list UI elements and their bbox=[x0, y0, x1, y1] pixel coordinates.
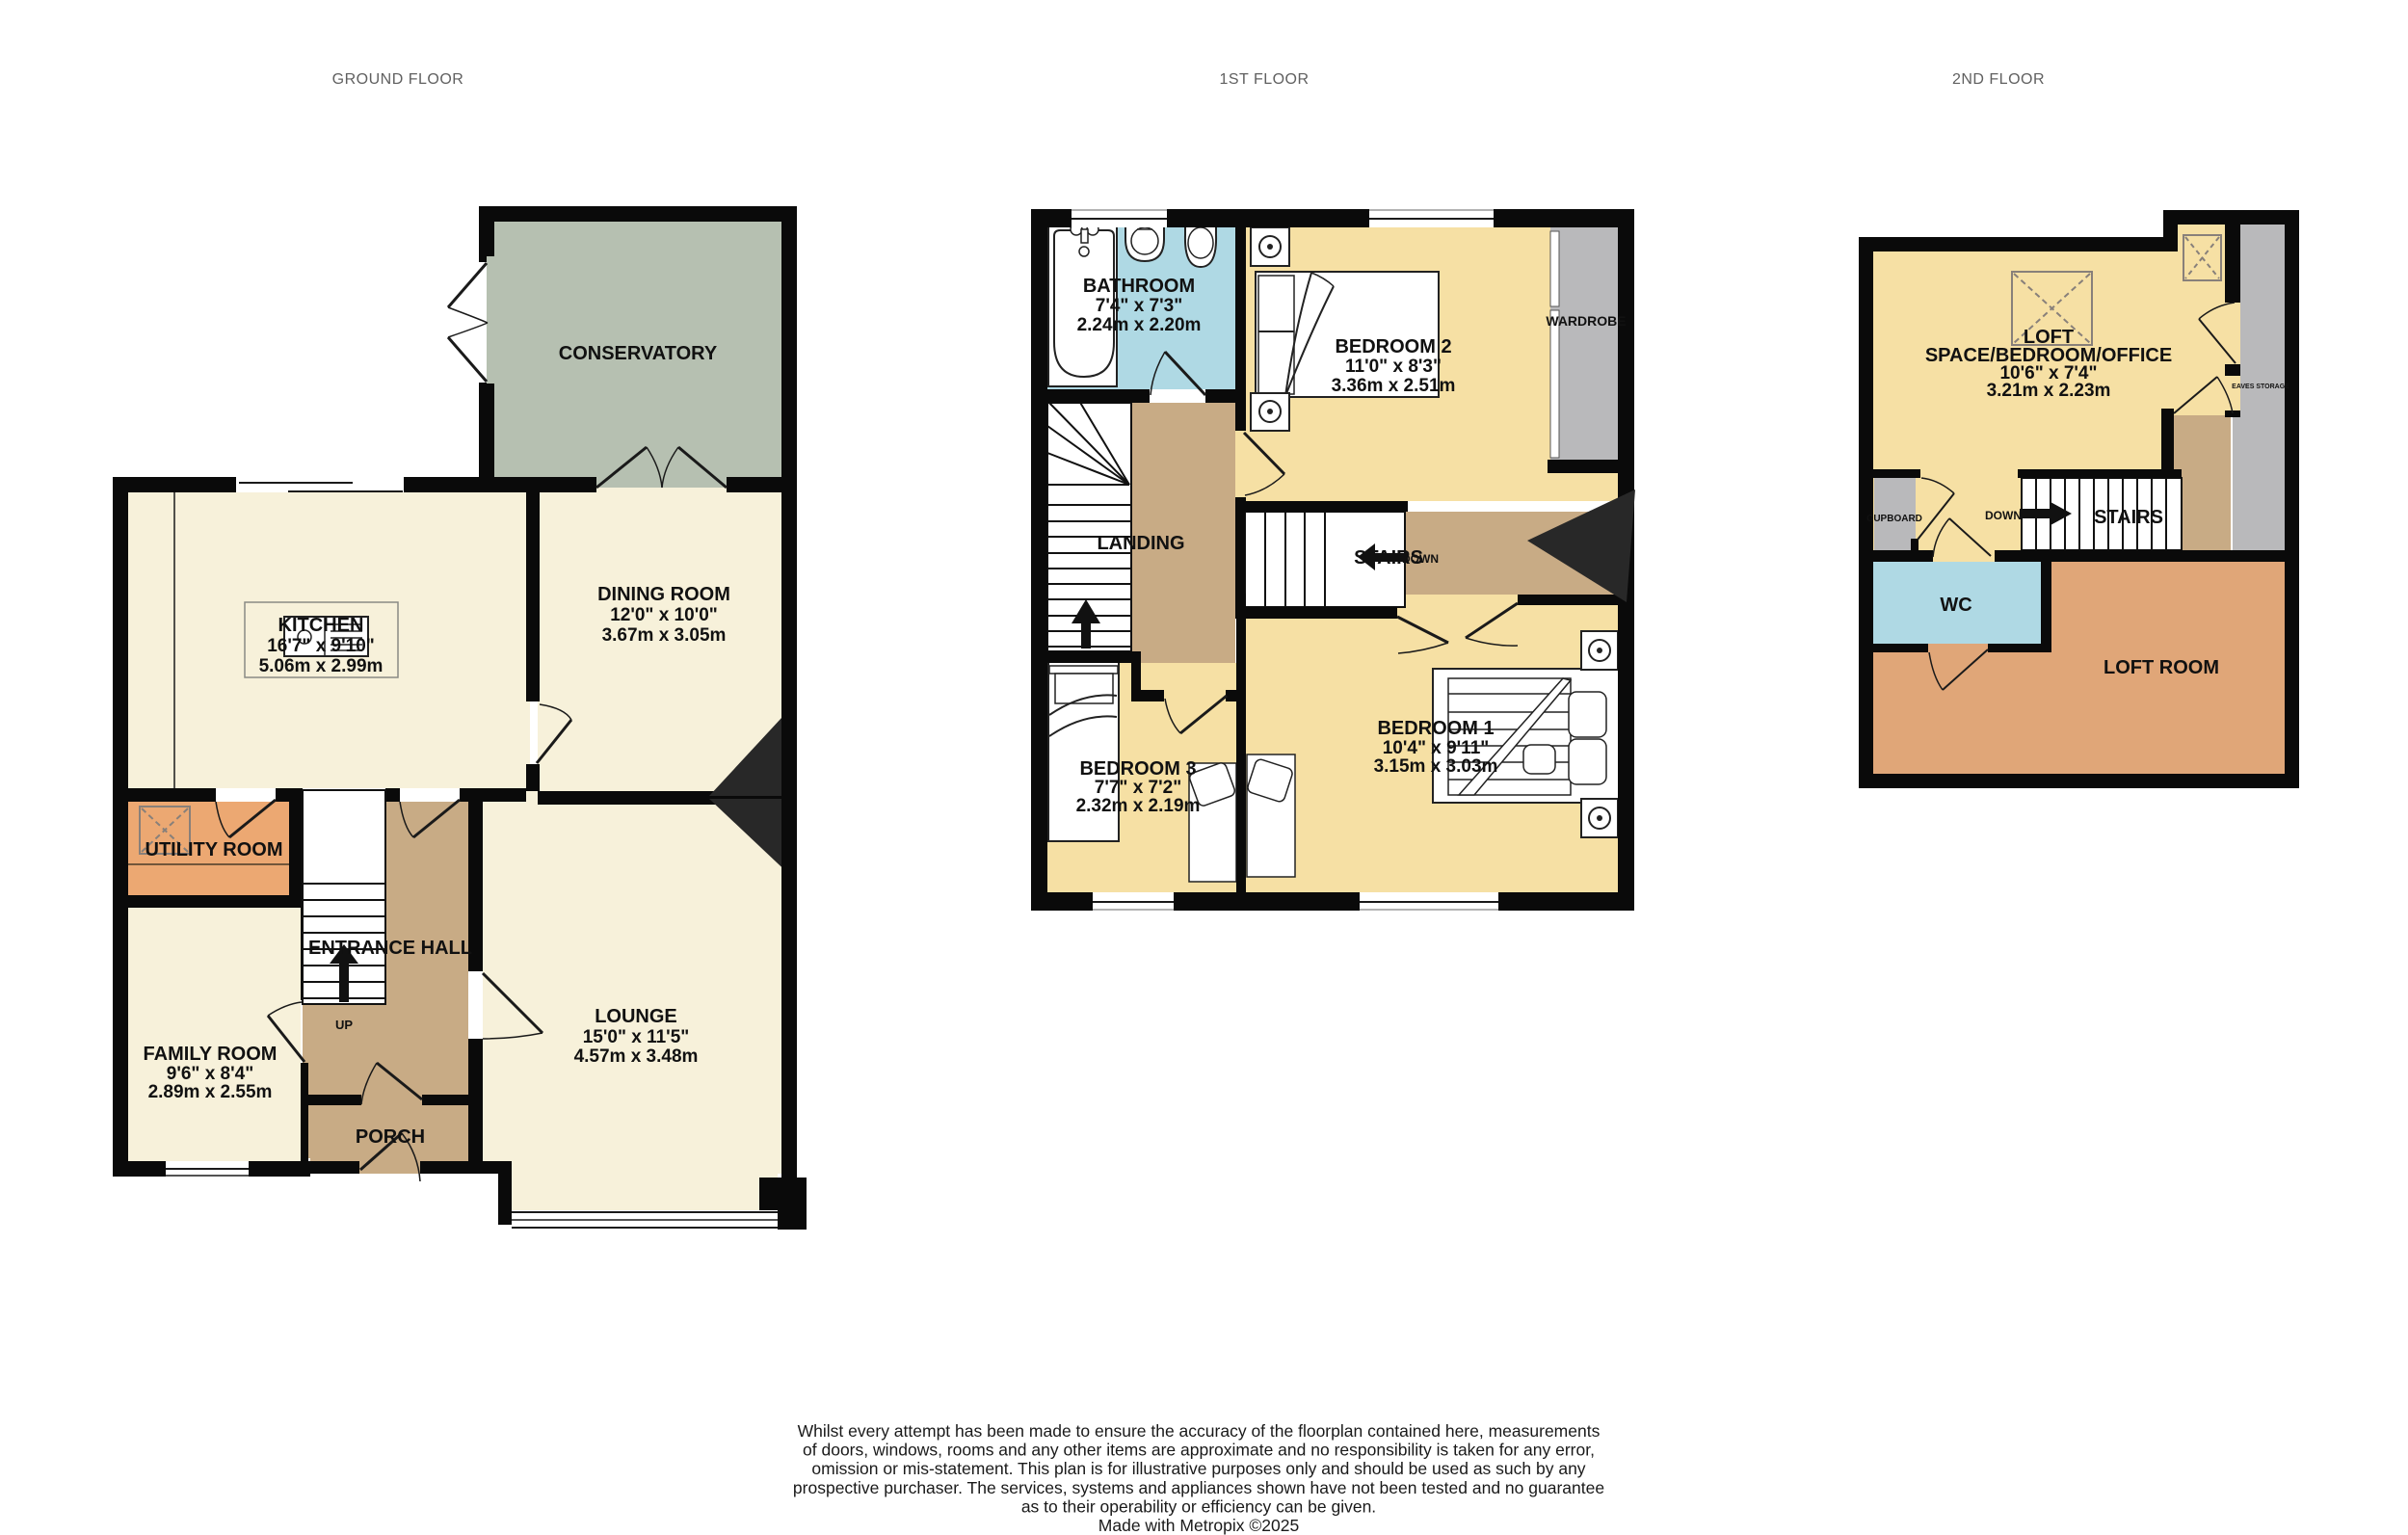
svg-text:prospective purchaser. The ser: prospective purchaser. The services, sys… bbox=[793, 1478, 1604, 1497]
svg-text:3.15m x 3.03m: 3.15m x 3.03m bbox=[1374, 756, 1498, 777]
svg-text:2.32m x 2.19m: 2.32m x 2.19m bbox=[1076, 796, 1201, 816]
svg-text:Whilst every attempt has been: Whilst every attempt has been made to en… bbox=[798, 1421, 1601, 1441]
svg-text:9'6" x 8'4": 9'6" x 8'4" bbox=[167, 1064, 253, 1084]
svg-text:BATHROOM: BATHROOM bbox=[1083, 276, 1195, 297]
svg-text:BEDROOM 3: BEDROOM 3 bbox=[1079, 758, 1196, 780]
svg-text:5.06m x 2.99m: 5.06m x 2.99m bbox=[259, 656, 384, 676]
svg-text:12'0" x 10'0": 12'0" x 10'0" bbox=[610, 605, 718, 625]
svg-text:KITCHEN: KITCHEN bbox=[278, 615, 364, 636]
svg-text:BEDROOM 1: BEDROOM 1 bbox=[1377, 718, 1494, 739]
svg-text:7'7" x 7'2": 7'7" x 7'2" bbox=[1095, 778, 1181, 798]
svg-text:LANDING: LANDING bbox=[1097, 533, 1184, 554]
svg-text:4.57m x 3.48m: 4.57m x 3.48m bbox=[574, 1046, 699, 1067]
svg-text:BEDROOM 2: BEDROOM 2 bbox=[1335, 336, 1451, 357]
svg-text:DOWN: DOWN bbox=[1985, 509, 2022, 522]
svg-text:15'0" x 11'5": 15'0" x 11'5" bbox=[583, 1027, 690, 1047]
svg-text:CUPBOARD: CUPBOARD bbox=[1866, 514, 1922, 524]
svg-text:10'4" x 9'11": 10'4" x 9'11" bbox=[1383, 738, 1490, 758]
svg-text:3.21m x 2.23m: 3.21m x 2.23m bbox=[1987, 381, 2111, 401]
svg-text:UP: UP bbox=[335, 1018, 353, 1032]
svg-text:CONSERVATORY: CONSERVATORY bbox=[559, 343, 718, 364]
svg-text:of doors, windows, rooms and a: of doors, windows, rooms and any other i… bbox=[803, 1441, 1595, 1460]
svg-text:omission or mis-statement. Thi: omission or mis-statement. This plan is … bbox=[811, 1459, 1585, 1478]
svg-text:7'4" x 7'3": 7'4" x 7'3" bbox=[1096, 296, 1182, 316]
svg-text:EAVES STORAGE: EAVES STORAGE bbox=[2232, 384, 2289, 390]
svg-text:UTILITY ROOM: UTILITY ROOM bbox=[146, 839, 283, 860]
svg-text:GROUND FLOOR: GROUND FLOOR bbox=[332, 71, 464, 88]
svg-text:11'0" x 8'3": 11'0" x 8'3" bbox=[1345, 357, 1442, 377]
svg-text:WARDROBE: WARDROBE bbox=[1546, 313, 1626, 329]
svg-text:as to their operability or eff: as to their operability or efficiency ca… bbox=[1021, 1496, 1376, 1516]
svg-text:1ST FLOOR: 1ST FLOOR bbox=[1219, 71, 1309, 88]
svg-text:LOFT ROOM: LOFT ROOM bbox=[2104, 657, 2219, 678]
svg-text:ENTRANCE HALL: ENTRANCE HALL bbox=[308, 938, 472, 959]
svg-text:FAMILY ROOM: FAMILY ROOM bbox=[144, 1044, 278, 1065]
svg-text:2.89m x 2.55m: 2.89m x 2.55m bbox=[148, 1082, 273, 1102]
svg-text:PORCH: PORCH bbox=[356, 1126, 425, 1148]
svg-text:STAIRS: STAIRS bbox=[2094, 507, 2163, 528]
svg-text:3.36m x 2.51m: 3.36m x 2.51m bbox=[1332, 376, 1456, 396]
svg-text:16'7" x 9'10": 16'7" x 9'10" bbox=[267, 636, 375, 656]
svg-text:DINING ROOM: DINING ROOM bbox=[597, 584, 730, 605]
svg-text:2.24m x 2.20m: 2.24m x 2.20m bbox=[1077, 315, 1202, 335]
svg-text:WC: WC bbox=[1940, 595, 1971, 616]
svg-text:2ND FLOOR: 2ND FLOOR bbox=[1952, 71, 2045, 88]
svg-text:LOUNGE: LOUNGE bbox=[595, 1006, 677, 1027]
svg-text:3.67m x 3.05m: 3.67m x 3.05m bbox=[602, 625, 727, 646]
svg-text:Made with Metropix ©2025: Made with Metropix ©2025 bbox=[1098, 1516, 1299, 1535]
